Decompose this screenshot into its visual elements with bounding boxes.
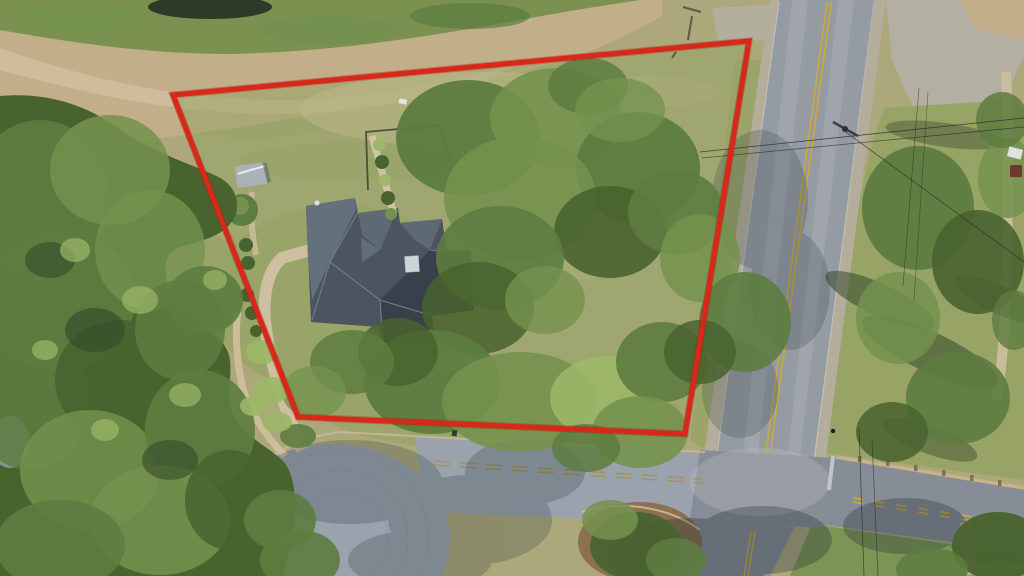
- aerial-photo-frame: [0, 0, 1024, 576]
- utility-pole: [842, 126, 848, 132]
- aerial-photo: [0, 0, 1024, 576]
- garden-shed: [235, 161, 272, 188]
- chimney: [404, 256, 419, 273]
- vent-cap: [315, 201, 320, 206]
- trash-bin: [452, 430, 458, 437]
- neighbor-structure: [1010, 165, 1022, 177]
- dark-object: [831, 429, 835, 433]
